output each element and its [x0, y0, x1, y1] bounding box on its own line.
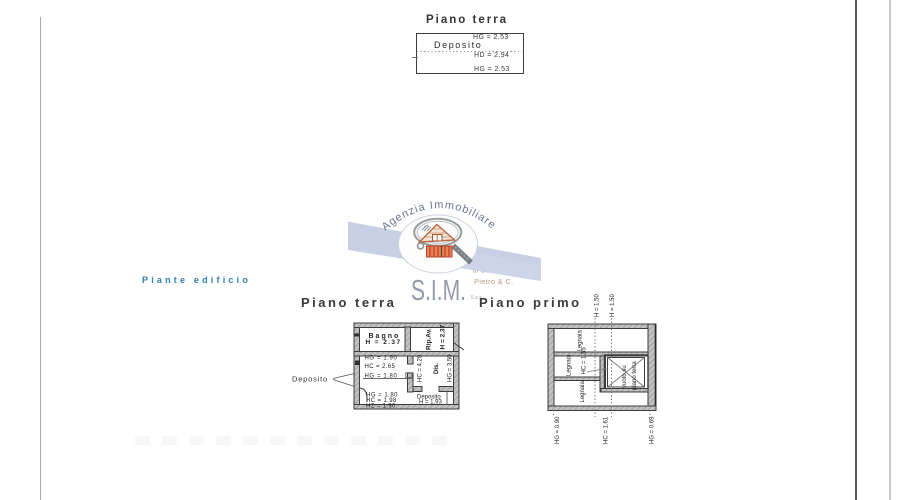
- svg-text:H2 = 1.90: H2 = 1.90: [366, 404, 396, 410]
- svg-text:Dis.: Dis.: [434, 363, 440, 374]
- svg-text:S.I.M.: S.I.M.: [411, 275, 466, 307]
- svg-text:H = 1.50: H = 1.50: [610, 293, 616, 317]
- svg-text:HG = 3.50: HG = 3.50: [448, 354, 454, 382]
- svg-text:HG = 0.90: HG = 0.90: [555, 416, 561, 444]
- svg-text:HG = 0.69: HG = 0.69: [650, 416, 656, 444]
- svg-text:vuoto su: vuoto su: [622, 365, 628, 388]
- svg-text:piano terra: piano terra: [632, 361, 638, 390]
- svg-text:HC = 1.61: HC = 1.61: [604, 416, 610, 444]
- svg-text:H = 2.37: H = 2.37: [440, 324, 447, 349]
- svg-text:Pietro & C.: Pietro & C.: [474, 277, 514, 286]
- svg-text:HC = 4.20: HC = 4.20: [418, 354, 424, 382]
- svg-text:HC = 1.55: HC = 1.55: [582, 347, 588, 375]
- svg-text:HC = 2.65: HC = 2.65: [365, 364, 396, 370]
- svg-text:HG = 1.90: HG = 1.90: [365, 356, 398, 362]
- svg-text:H = 1.50: H = 1.50: [595, 293, 601, 317]
- svg-text:Rip.Av.: Rip.Av.: [426, 328, 433, 350]
- svg-text:H = 1.93: H = 1.93: [419, 400, 443, 406]
- svg-text:Legnaia: Legnaia: [567, 354, 573, 376]
- svg-text:Deposito: Deposito: [292, 375, 328, 384]
- svg-text:Legnaia: Legnaia: [580, 380, 586, 402]
- svg-text:H = 2.37: H = 2.37: [366, 339, 402, 346]
